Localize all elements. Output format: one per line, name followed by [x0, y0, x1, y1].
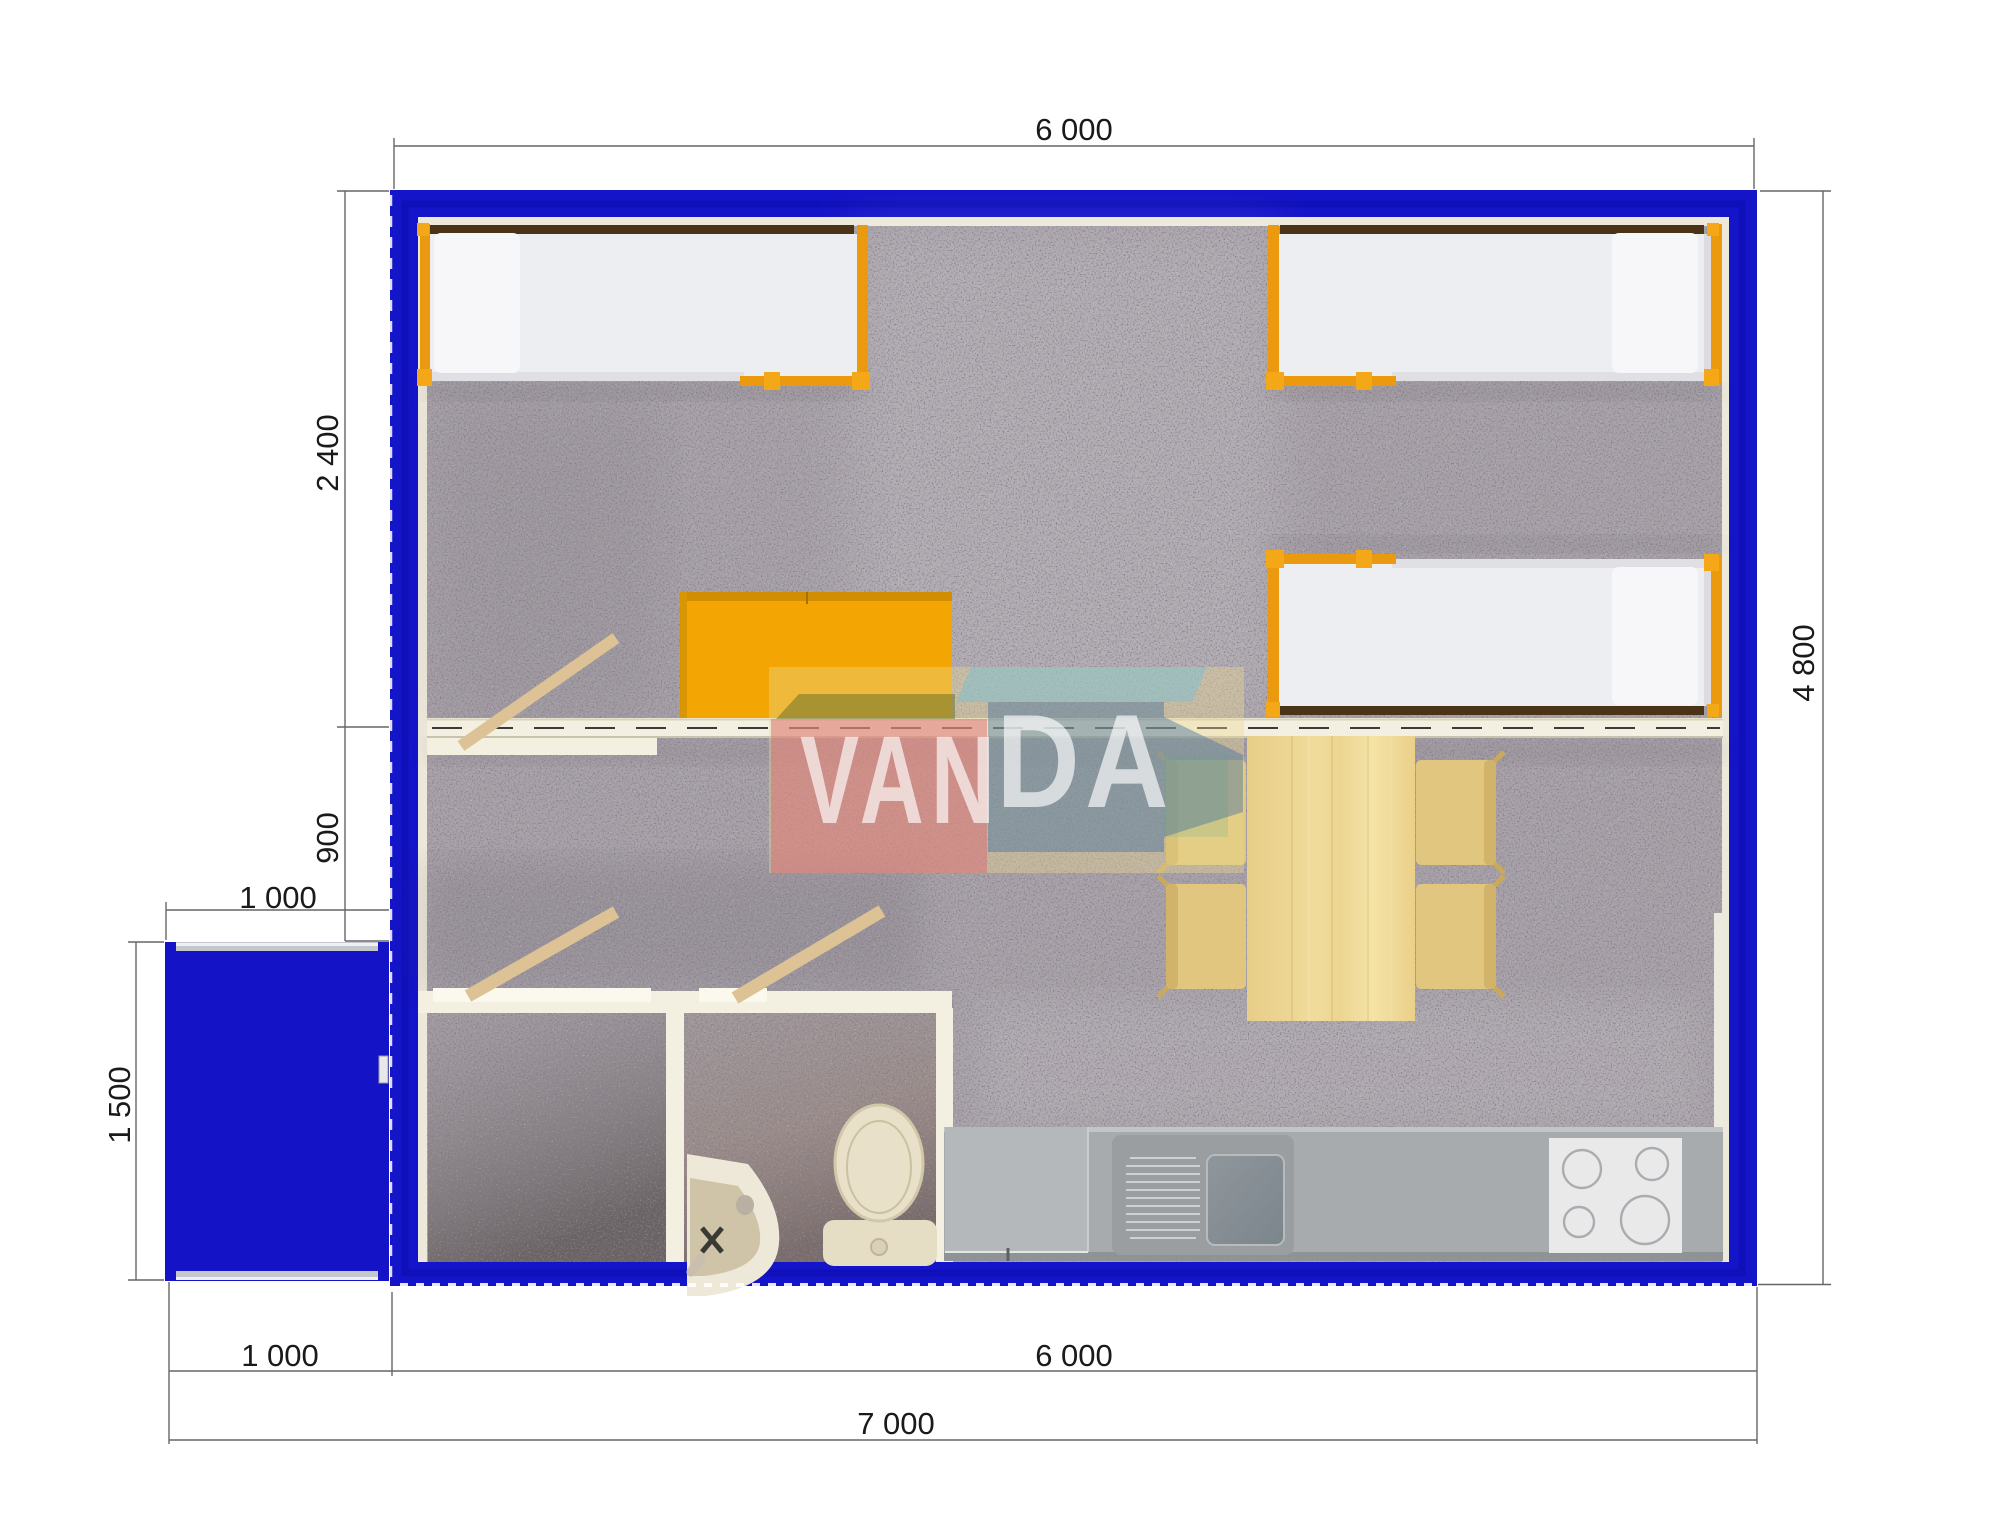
svg-text:DA: DA: [996, 688, 1174, 836]
svg-text:6 000: 6 000: [1035, 112, 1113, 147]
svg-text:1 000: 1 000: [241, 1338, 319, 1373]
svg-text:VAN: VAN: [800, 710, 1002, 850]
svg-text:2 400: 2 400: [310, 414, 345, 492]
svg-text:7 000: 7 000: [857, 1406, 935, 1441]
svg-text:900: 900: [310, 812, 345, 864]
svg-text:4 800: 4 800: [1786, 624, 1821, 702]
svg-text:6 000: 6 000: [1035, 1338, 1113, 1373]
svg-text:1 000: 1 000: [239, 880, 317, 915]
svg-text:1 500: 1 500: [102, 1066, 137, 1144]
